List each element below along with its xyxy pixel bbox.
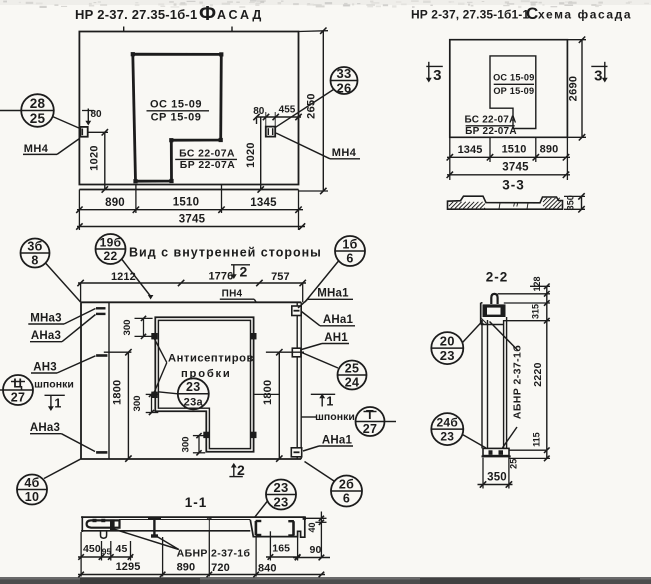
svg-text:2220: 2220 [532,362,544,387]
svg-text:27: 27 [363,422,378,436]
svg-text:1800: 1800 [262,380,274,405]
svg-text:1295: 1295 [116,561,141,573]
svg-text:300: 300 [132,395,143,411]
svg-text:БР 22-07А: БР 22-07А [465,126,517,137]
svg-text:720: 720 [211,562,230,574]
svg-text:350: 350 [566,195,576,210]
svg-text:890: 890 [540,144,559,156]
svg-text:БС 22-07А: БС 22-07А [464,114,516,125]
svg-text:3: 3 [433,67,442,84]
svg-text:3б: 3б [27,239,42,253]
svg-text:840: 840 [258,563,277,575]
svg-text:23: 23 [440,429,454,443]
svg-text:1020: 1020 [88,145,100,171]
svg-text:24: 24 [345,376,360,390]
svg-text:1-1: 1-1 [185,495,208,510]
svg-text:757: 757 [271,271,290,283]
svg-text:1212: 1212 [111,271,136,283]
svg-text:23: 23 [273,480,288,495]
svg-text:90: 90 [310,544,322,556]
svg-text:хема фасада: хема фасада [538,8,632,22]
svg-text:25: 25 [30,111,46,126]
svg-text:6: 6 [346,252,353,266]
svg-text:МН4: МН4 [24,143,49,155]
svg-text:20: 20 [440,334,455,349]
svg-text:455: 455 [279,105,296,116]
svg-text:АН3: АН3 [33,362,57,374]
svg-text:1: 1 [54,397,61,411]
svg-text:АНа3: АНа3 [31,330,61,342]
svg-text:1б: 1б [342,237,357,251]
svg-text:95: 95 [102,547,112,557]
svg-text:пробки: пробки [181,368,232,380]
svg-text:26: 26 [336,81,351,96]
svg-text:1: 1 [326,395,333,409]
svg-text:АСАД: АСАД [217,8,264,22]
svg-text:165: 165 [272,543,290,555]
svg-text:АНа1: АНа1 [322,435,353,447]
svg-text:1800: 1800 [112,380,124,405]
svg-text:450: 450 [83,543,101,555]
svg-text:80: 80 [253,106,265,117]
svg-text:1510: 1510 [502,144,527,156]
svg-text:300: 300 [122,319,133,335]
svg-text:28: 28 [30,96,46,111]
svg-text:1776: 1776 [208,271,233,283]
svg-text:350: 350 [487,472,507,484]
svg-text:ОС 15-09: ОС 15-09 [150,99,202,111]
svg-text:АНа1: АНа1 [323,314,354,326]
svg-text:890: 890 [105,197,125,209]
svg-text:АН1: АН1 [324,332,348,344]
svg-text:25: 25 [509,459,519,469]
svg-text:СР 15-09: СР 15-09 [151,112,202,124]
svg-text:АБНР 2-37-1б: АБНР 2-37-1б [512,345,524,419]
svg-text:3-3: 3-3 [502,178,525,193]
svg-text:890: 890 [177,561,196,573]
svg-text:6: 6 [343,492,350,506]
svg-text:33: 33 [336,66,351,81]
svg-text:Ф: Ф [199,3,216,25]
svg-text:МН4: МН4 [332,147,357,159]
svg-text:1345: 1345 [250,197,277,209]
svg-text:2-2: 2-2 [486,270,509,285]
svg-text:1510: 1510 [173,197,199,209]
svg-text:ПН4: ПН4 [222,288,243,299]
svg-text:4б: 4б [24,476,39,490]
svg-text:Т: Т [366,408,374,422]
svg-text:23а: 23а [184,396,204,408]
svg-text:шпонки: шпонки [315,411,355,423]
svg-text:45: 45 [116,543,128,555]
svg-text:40: 40 [307,522,317,532]
svg-text:Антисептиров: Антисептиров [168,353,254,365]
svg-text:3745: 3745 [179,214,206,226]
svg-text:300: 300 [180,436,191,452]
svg-text:БС 22-07А: БС 22-07А [179,149,235,160]
svg-text:2690: 2690 [568,76,580,102]
svg-text:8: 8 [31,254,38,268]
svg-text:24б: 24б [436,416,458,430]
svg-text:2: 2 [237,462,245,478]
svg-text:128: 128 [532,276,542,291]
svg-text:БР 22-07А: БР 22-07А [180,160,235,171]
svg-text:25: 25 [345,361,360,375]
svg-text:шпонки: шпонки [34,379,74,391]
svg-text:3745: 3745 [502,161,529,173]
svg-text:10: 10 [25,490,40,504]
svg-text:315: 315 [531,304,541,319]
svg-text:23: 23 [273,495,288,510]
svg-text:НР 2-37. 27.35-1б-1: НР 2-37. 27.35-1б-1 [75,7,197,22]
svg-text:МНа1: МНа1 [317,288,349,300]
svg-text:МНа3: МНа3 [30,313,61,325]
svg-text:АНа3: АНа3 [30,422,60,434]
svg-text:22: 22 [104,249,118,263]
svg-text:Ц: Ц [13,376,23,390]
svg-text:ОС 15-09: ОС 15-09 [493,73,534,83]
svg-text:1020: 1020 [245,142,257,168]
svg-text:19б: 19б [100,235,122,249]
svg-text:С: С [526,4,538,23]
svg-text:2б: 2б [339,477,354,491]
svg-text:27: 27 [11,391,26,405]
svg-text:23: 23 [186,380,201,394]
svg-text:НР 2-37, 27.35-1б1-1: НР 2-37, 27.35-1б1-1 [411,8,529,22]
svg-text:ОР 15-09: ОР 15-09 [493,86,534,96]
svg-text:23: 23 [440,348,455,363]
svg-text:3: 3 [594,68,603,85]
svg-text:Вид с внутренней стороны: Вид с внутренней стороны [129,246,322,260]
svg-text:АБНР 2-37-1б: АБНР 2-37-1б [177,548,251,560]
svg-text:115: 115 [532,432,542,447]
svg-text:1345: 1345 [458,144,483,156]
svg-text:2: 2 [239,264,247,280]
